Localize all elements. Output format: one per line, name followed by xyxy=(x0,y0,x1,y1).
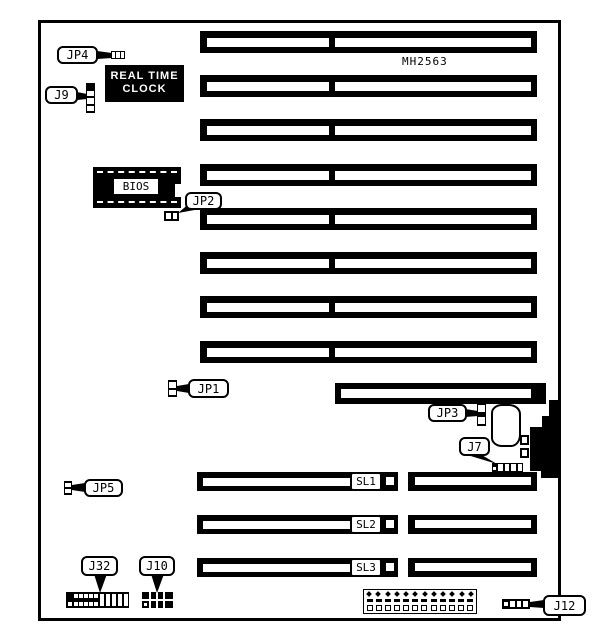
j32-pin1 xyxy=(68,602,72,606)
power-dash-row xyxy=(367,599,473,602)
keyboard-connector-pin xyxy=(520,448,529,458)
slot-sl3-key xyxy=(386,563,394,571)
battery xyxy=(491,404,521,447)
jp5-header xyxy=(64,481,72,495)
power-connector xyxy=(363,589,477,614)
slot-sl3-bar-right xyxy=(408,558,537,577)
callout-j32: J32 xyxy=(81,556,118,576)
slot-sl1-key xyxy=(386,477,394,485)
j10-header xyxy=(142,592,173,608)
motherboard-jumper-diagram: MH2563 REAL TIME CLOCK BIOS SL1 SL2 SL3 xyxy=(0,0,613,642)
callout-j7: J7 xyxy=(459,437,490,456)
rtc-chip: REAL TIME CLOCK xyxy=(105,65,184,102)
jp2-header xyxy=(164,211,179,221)
expansion-slot-bar xyxy=(200,119,537,141)
jp1-header xyxy=(168,380,177,397)
callout-jp3: JP3 xyxy=(428,404,467,422)
slot-sl3-bar: SL3 xyxy=(197,558,398,577)
bios-pin-row-top xyxy=(97,171,177,173)
j7-header xyxy=(492,463,523,472)
expansion-slot-bar xyxy=(200,31,537,53)
expansion-slot-bar xyxy=(200,252,537,274)
callout-jp1: JP1 xyxy=(188,379,229,398)
jp3-header xyxy=(477,403,486,426)
model-number: MH2563 xyxy=(402,55,448,68)
rtc-chip-label-line1: REAL TIME xyxy=(105,70,184,83)
expansion-slot-bar xyxy=(200,208,537,230)
callout-j10: J10 xyxy=(139,556,175,576)
slot-sl2-bar-right xyxy=(408,515,537,534)
expansion-slot-bar xyxy=(200,341,537,363)
bios-chip: BIOS xyxy=(93,167,181,208)
j9-header xyxy=(86,83,95,113)
keyboard-connector xyxy=(541,470,561,478)
keyboard-connector-pin xyxy=(520,435,529,445)
slot-sl1-bar: SL1 xyxy=(197,472,398,491)
callout-j12: J12 xyxy=(543,595,586,616)
keyboard-connector xyxy=(530,427,561,471)
slot-label-sl2: SL2 xyxy=(350,515,382,534)
jp4-header xyxy=(111,51,125,59)
slot-sl2-key xyxy=(386,520,394,528)
power-socket-row xyxy=(367,605,473,611)
slot-sl1-bar-right xyxy=(408,472,537,491)
j10-pin1 xyxy=(144,603,147,606)
expansion-slot-bar-short xyxy=(335,383,546,404)
callout-jp2: JP2 xyxy=(185,192,222,210)
rtc-chip-label-line2: CLOCK xyxy=(105,83,184,96)
callout-jp5: JP5 xyxy=(84,479,123,497)
slot-label-sl3: SL3 xyxy=(350,558,382,577)
expansion-slot-bar xyxy=(200,296,537,318)
j12-header xyxy=(502,599,530,609)
slot-label-sl1: SL1 xyxy=(350,472,382,491)
bios-pin-row-bottom xyxy=(97,201,177,203)
slot-sl2-bar: SL2 xyxy=(197,515,398,534)
callout-j9: J9 xyxy=(45,86,78,104)
callout-jp4: JP4 xyxy=(57,46,98,64)
j32-header xyxy=(66,592,129,608)
bios-notch xyxy=(175,184,181,197)
power-pin-row xyxy=(367,592,473,596)
expansion-slot-bar xyxy=(200,164,537,186)
bios-chip-label: BIOS xyxy=(114,179,158,194)
expansion-slot-bar xyxy=(200,75,537,97)
